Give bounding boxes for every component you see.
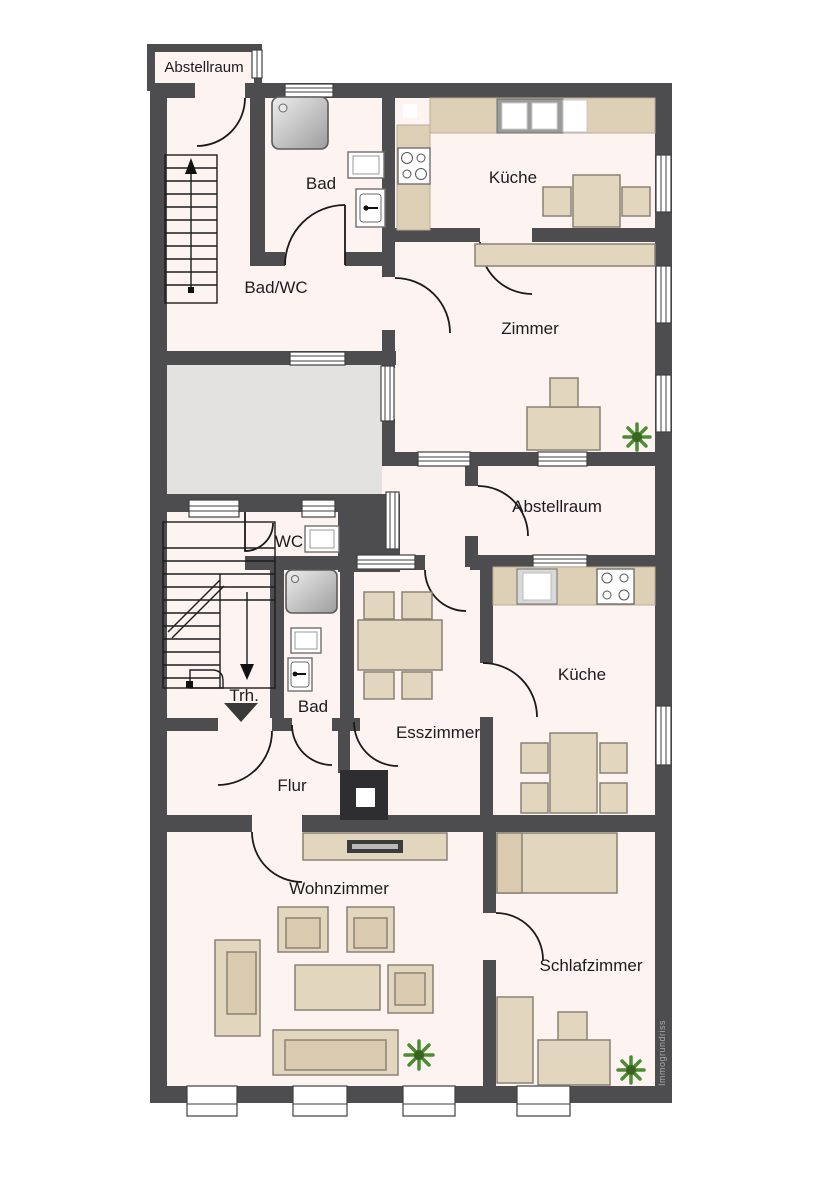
wall-storagebox-left (147, 44, 155, 91)
plant-wohnzimmer (405, 1041, 433, 1069)
wall-ess-kueche2-a (480, 567, 493, 663)
sofa-bottom (273, 1030, 398, 1075)
window-ess-top (357, 555, 415, 569)
wc-sink (305, 526, 339, 552)
wall-flur-esszimmer (340, 556, 354, 722)
window-facade-3 (403, 1086, 455, 1116)
kitchen1-sink-basin-1 (502, 103, 527, 129)
wall-right (655, 83, 672, 1103)
wc-fixtures (305, 526, 339, 552)
bed (497, 833, 617, 893)
label-kueche-1: Küche (489, 168, 537, 187)
window-zimmer-right-1 (656, 266, 671, 323)
window-zimmer-gray (381, 366, 394, 421)
wall-wohn-schlaf-a (483, 832, 496, 913)
wall-trh-flur-a (150, 718, 218, 731)
kitchen1-table (573, 175, 620, 227)
schlafzimmer-desk (538, 1040, 610, 1085)
window-abst2-bottom (533, 555, 587, 567)
floorplan-page: Abstellraum Bad Küche Bad/WC Zimmer Abst… (0, 0, 834, 1180)
label-esszimmer: Esszimmer (396, 723, 480, 742)
chimney-flue (356, 788, 375, 807)
label-flur: Flur (277, 776, 307, 795)
kitchen2-stove (597, 569, 634, 604)
kitchen2-sink (517, 569, 557, 604)
wall-wohn-schlaf-b (483, 960, 496, 1086)
schlafzimmer-chair (558, 1012, 587, 1040)
window-corridor (386, 492, 399, 549)
stairwell-gray-area (167, 365, 382, 495)
plant-zimmer (624, 424, 650, 450)
kitchen2-table (550, 733, 597, 813)
armchair-1 (278, 907, 328, 952)
wall-badwc-bottom (150, 351, 396, 365)
kitchen1-sink-basin-2 (532, 103, 557, 129)
kitchen2-chair-1 (521, 743, 548, 773)
wall-shaft (403, 104, 417, 118)
armchair-3 (388, 965, 433, 1013)
bath2-washer (291, 628, 321, 653)
window-facade-2 (293, 1086, 347, 1116)
window-kueche2-right (656, 706, 671, 765)
label-bad-1: Bad (306, 174, 336, 193)
plant-schlafzimmer (618, 1057, 644, 1083)
bath1-shower-head (279, 104, 287, 112)
bath2-shower-head (292, 576, 299, 583)
kitchen1-counter-white (563, 100, 587, 132)
window-facade-4 (517, 1086, 570, 1116)
wall-zimmer-left-a (382, 230, 395, 277)
window-zimmer-right-2 (656, 375, 671, 432)
label-bad-2: Bad (298, 697, 328, 716)
label-wohnzimmer: Wohnzimmer (289, 879, 389, 898)
window-facade-1 (187, 1086, 237, 1116)
zimmer-desk (527, 407, 600, 450)
label-treppenhaus: Trh. (229, 686, 259, 705)
label-abstellraum-2: Abstellraum (512, 497, 602, 516)
watermark-text: Immogrundriss (657, 1020, 667, 1086)
esszimmer-chair-4 (402, 672, 432, 699)
kitchen2-chair-3 (600, 743, 627, 773)
kitchen2-chair-2 (521, 783, 548, 813)
bath1-washer (348, 152, 384, 178)
zimmer-chair (550, 378, 578, 407)
bath1-sink (356, 189, 385, 227)
wall-stairs-bad1 (250, 98, 265, 253)
label-schlafzimmer: Schlafzimmer (540, 956, 643, 975)
window-abst2-top-2 (538, 452, 587, 466)
label-bad-wc: Bad/WC (244, 278, 307, 297)
kitchen1-chair-right (622, 187, 650, 216)
label-abstellraum-top: Abstellraum (164, 59, 243, 76)
sofa-left (215, 940, 260, 1036)
label-wc: WC (275, 532, 303, 551)
armchair-2 (347, 907, 394, 952)
label-kueche-2: Küche (558, 665, 606, 684)
window-gray-bottom-1 (189, 500, 239, 517)
wall-bad1-badwc-b (345, 252, 385, 266)
window-gray-bottom-2 (302, 500, 335, 517)
window-bad1-top (285, 84, 333, 97)
esszimmer-table (358, 620, 442, 670)
kitchen1-chair-left (543, 187, 571, 216)
wall-wc-bottom (245, 556, 340, 570)
kitchen2-chair-4 (600, 783, 627, 813)
kitchen1-stove (398, 148, 430, 184)
wall-abst2-left-a (465, 466, 478, 486)
zimmer-sideboard (475, 244, 655, 266)
window-badwc-bottom (290, 352, 345, 365)
wall-storagebox-top (147, 44, 262, 52)
esszimmer-chair-2 (402, 592, 432, 619)
wall-flur-stub (338, 722, 350, 773)
window-storagebox (252, 50, 262, 78)
wall-trh-flur-b (272, 718, 292, 731)
label-zimmer: Zimmer (501, 319, 559, 338)
esszimmer-chair-1 (364, 592, 394, 619)
floorplan-drawing: Abstellraum Bad Küche Bad/WC Zimmer Abst… (0, 0, 834, 1180)
wall-bad1-badwc-a (250, 252, 285, 266)
coffee-table (295, 965, 380, 1010)
wall-kueche1-zimmer-b (532, 228, 655, 242)
tv-screen (352, 844, 398, 849)
window-abst2-top-1 (418, 452, 470, 466)
wall-trh-bad2 (270, 558, 284, 718)
esszimmer-chair-3 (364, 672, 394, 699)
wall-ess-kueche2-b (480, 717, 493, 815)
wall-mid-horizontal-a (150, 815, 252, 832)
bath2-toilet (288, 658, 312, 691)
wardrobe (497, 997, 533, 1083)
window-kueche1-right (656, 155, 671, 212)
